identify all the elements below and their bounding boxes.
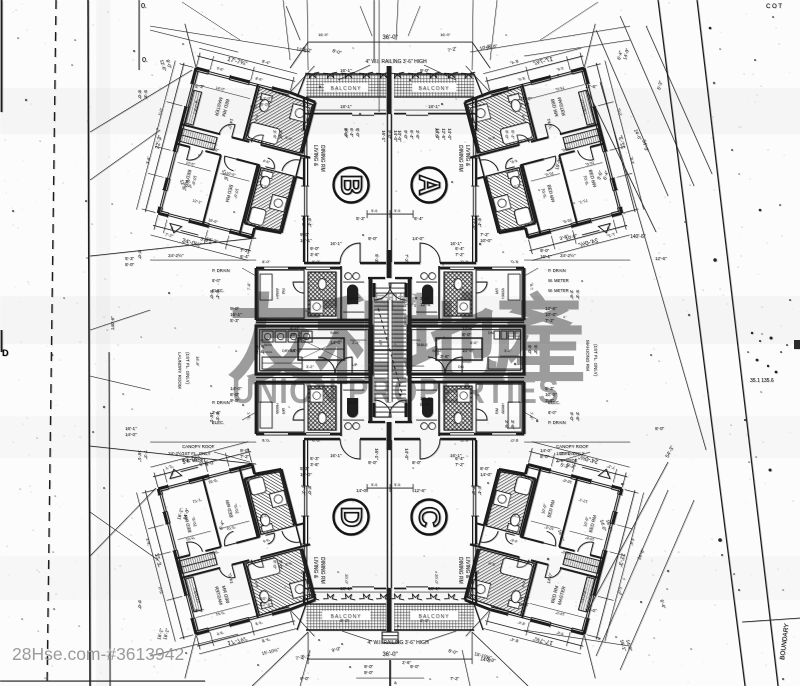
svg-text:28Hse.com-#3613942: 28Hse.com-#3613942 <box>12 644 184 664</box>
